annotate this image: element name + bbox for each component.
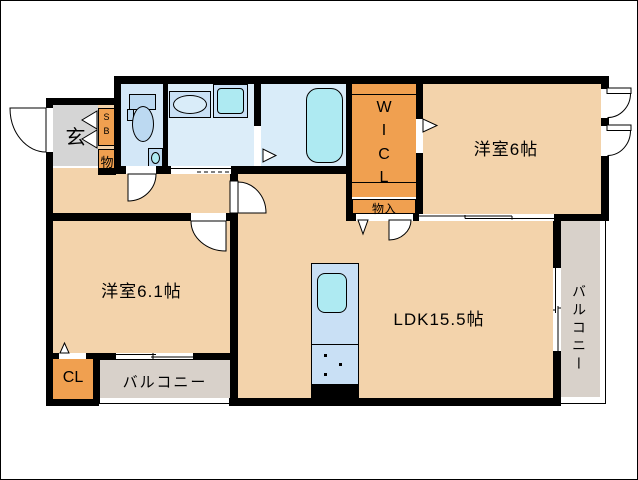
wall-segment	[601, 76, 609, 89]
wicl-shelf-line-top	[352, 94, 416, 95]
wall-segment	[416, 76, 423, 119]
entry-door-arc	[10, 108, 46, 152]
toilet-bowl	[132, 106, 154, 142]
casement-window-arc	[608, 94, 631, 118]
wall-segment	[46, 399, 99, 406]
wall-segment	[163, 84, 168, 166]
wall-segment	[46, 353, 59, 359]
wall-segment	[230, 166, 238, 181]
genkan-step-line	[53, 166, 98, 168]
stove-burner-dot	[339, 363, 342, 366]
kitchen-base	[311, 385, 359, 399]
toilet-hand-basin-bowl	[151, 152, 160, 164]
label-storage-entry: 物入	[352, 200, 416, 217]
wall-segment	[46, 152, 53, 406]
label-ldk: LDK15.5帖	[359, 305, 519, 330]
vanity-sink	[173, 95, 207, 114]
kitchen-counter-divider	[311, 344, 359, 345]
washing-machine	[217, 88, 244, 114]
wall-segment	[553, 214, 561, 268]
kitchen-sink	[317, 273, 347, 313]
outside-mask	[46, 76, 114, 98]
wall-segment	[230, 213, 238, 406]
wall-segment	[554, 214, 609, 221]
label-wicl: W I C L	[352, 99, 416, 187]
wall-segment	[46, 213, 191, 221]
wall-segment	[156, 166, 171, 174]
wall-segment	[601, 156, 609, 221]
wall-segment	[553, 351, 561, 399]
wall-segment	[46, 98, 121, 105]
wall-segment	[86, 353, 116, 359]
wall-segment	[193, 353, 238, 359]
label-closet-cl: CL	[53, 369, 93, 387]
bathtub	[306, 88, 343, 163]
stove-burner-dot	[324, 354, 327, 357]
label-balcony-south: バルコニー	[99, 371, 231, 392]
wall-segment	[114, 76, 609, 84]
wall-segment	[231, 166, 352, 174]
wall-segment	[229, 398, 561, 406]
casement-window-arc	[608, 131, 631, 156]
casement-window-leaf	[607, 125, 631, 131]
label-storage-hall: 物	[98, 152, 116, 171]
stove-burner-dot	[324, 373, 327, 376]
wall-segment	[254, 84, 261, 125]
label-bedroom-east: 洋室6帖	[416, 135, 596, 160]
casement-window-leaf	[607, 88, 631, 94]
wall-segment	[416, 153, 423, 221]
label-shoe-box: S B	[98, 111, 115, 139]
label-genkan: 玄	[53, 121, 98, 150]
label-bedroom-west: 洋室6.1帖	[53, 277, 230, 302]
wall-segment	[46, 98, 53, 108]
floor-plan-image: 玄 S B 物 W I C L 物入 洋室6帖 洋室6.1帖 LDK15.5帖 …	[0, 0, 638, 480]
label-balcony-east: バルコニー	[569, 254, 589, 404]
wall-segment	[601, 118, 609, 126]
